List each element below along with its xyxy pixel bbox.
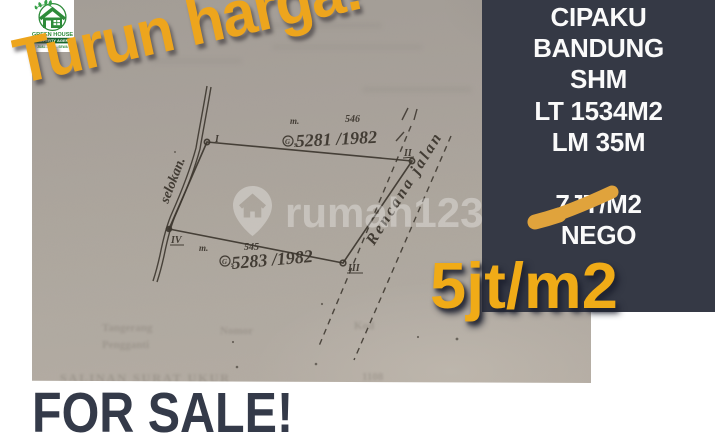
svg-text:m.: m. — [290, 116, 299, 126]
svg-text:Nomor: Nomor — [220, 325, 253, 337]
svg-text:m.: m. — [199, 243, 208, 253]
svg-text:546: 546 — [345, 114, 360, 125]
svg-text:G: G — [222, 258, 227, 266]
svg-text:IV: IV — [170, 235, 183, 246]
svg-text:G: G — [285, 138, 290, 146]
svg-text:Pengganti: Pengganti — [102, 339, 149, 351]
svg-text:rumah123: rumah123 — [285, 189, 483, 236]
svg-text:Tangerang: Tangerang — [102, 322, 153, 334]
svg-text:1108: 1108 — [362, 371, 384, 383]
svg-text:5281 /1982: 5281 /1982 — [295, 127, 377, 151]
